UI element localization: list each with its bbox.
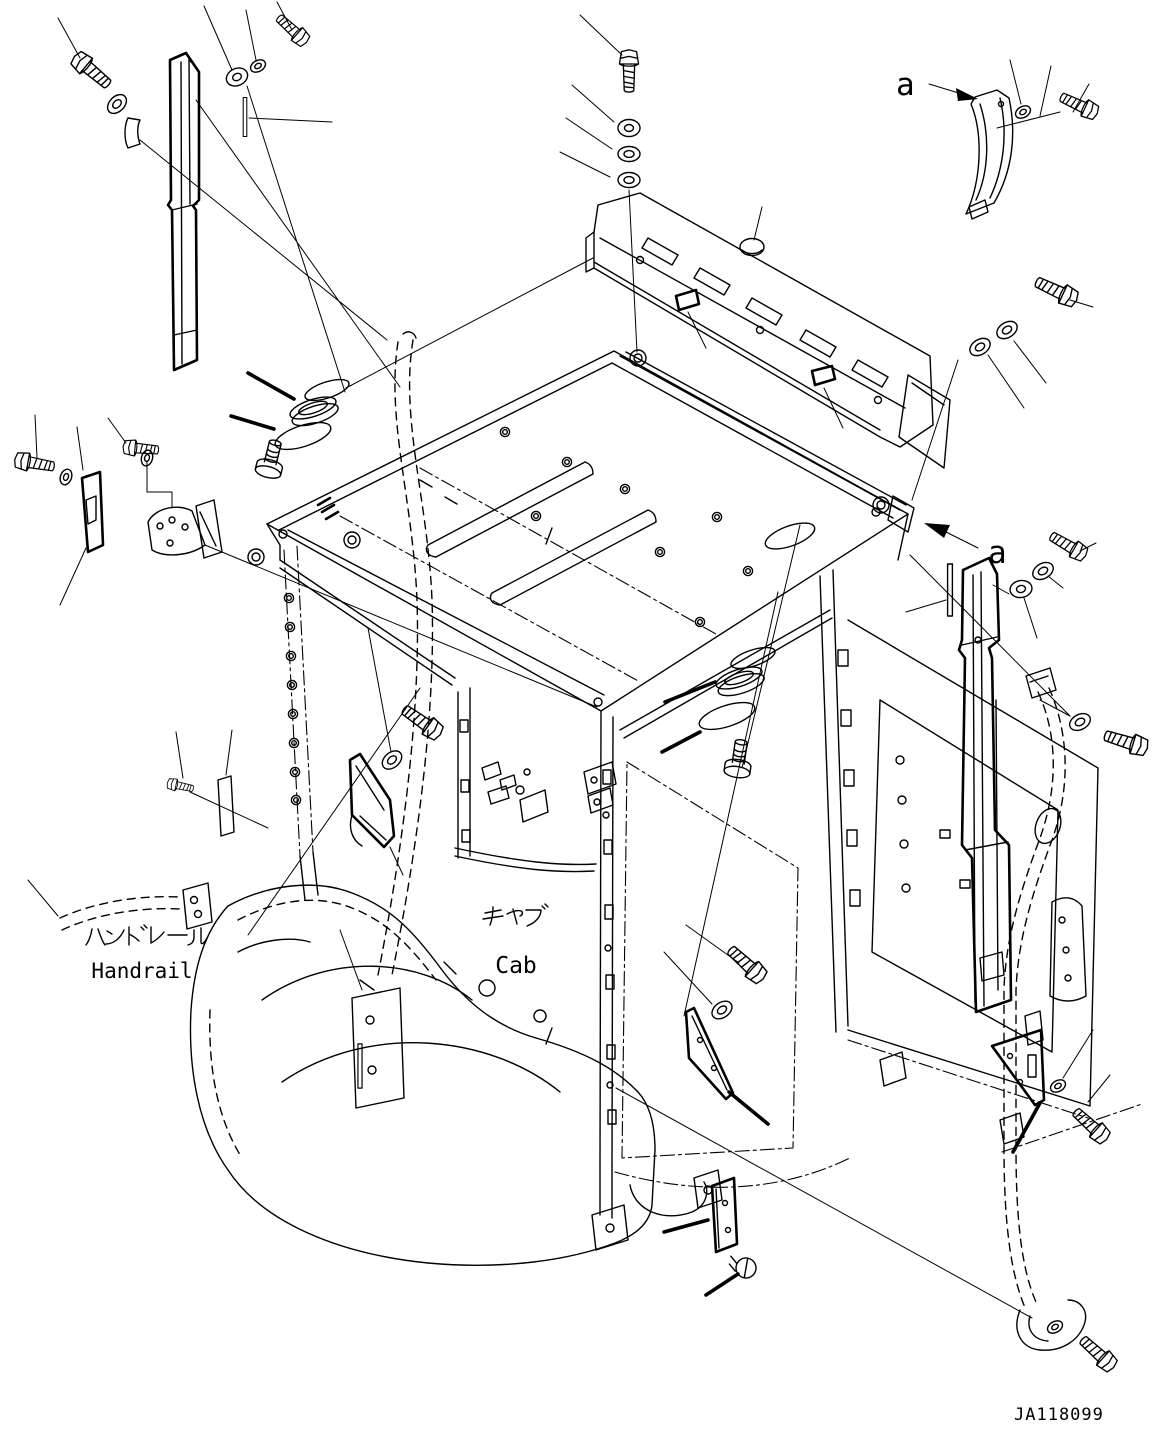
hex-bolt (1102, 726, 1150, 758)
hex-bolt (723, 942, 769, 987)
cab-body (248, 514, 1142, 1250)
flat-washer (1067, 710, 1093, 734)
roof-seal-assembly-right (662, 525, 800, 779)
small-nut (620, 484, 629, 493)
parts-diagram-page: ハンドレール キャブ (0, 0, 1157, 1453)
cab-roof (267, 350, 914, 711)
flat-washer (1048, 1077, 1067, 1095)
flat-washer (58, 468, 74, 487)
flat-washer (618, 147, 640, 162)
hex-bolt (1076, 1332, 1120, 1374)
shoulder-bolt (254, 437, 288, 480)
small-nut (655, 547, 664, 556)
left-handrail (28, 332, 432, 1108)
flat-washer (709, 998, 736, 1023)
view-label-a-side: a (988, 535, 1007, 571)
roof-right-fastener-set (912, 272, 1093, 500)
handrail-label-en: Handrail (91, 959, 192, 983)
spring-pin (243, 98, 247, 137)
hex-bolt (13, 451, 56, 476)
hex-bolt (122, 439, 159, 458)
drawing-number: JA118099 (1014, 1405, 1104, 1425)
hex-bolt (1069, 1104, 1113, 1146)
arrow-head (924, 523, 950, 538)
view-label-a-top: a (896, 67, 915, 103)
flat-washer (994, 318, 1021, 342)
cab-label-en: Cab (495, 953, 537, 979)
hex-bolt (1047, 528, 1091, 564)
flat-washer (104, 91, 130, 117)
arrow-head (956, 88, 978, 101)
window-wedge-bracket (248, 628, 446, 935)
left-trim-strip-assembly (58, 2, 400, 392)
cab-label-jp (483, 904, 548, 926)
flat-washer (967, 335, 994, 359)
flat-washer (1045, 1318, 1064, 1336)
roof-seal-assembly-left (231, 258, 593, 480)
grommet (344, 532, 360, 548)
flat-washer (1013, 103, 1032, 121)
small-nut (743, 566, 752, 575)
exploded-parts-diagram: a a (0, 0, 1157, 1453)
seal-ring (272, 417, 334, 455)
labels: Handrail Cab JA118099 (86, 904, 1104, 1425)
right-trim-strip-assembly (906, 528, 1096, 1012)
spring-pin (948, 564, 953, 616)
seal-ring (696, 697, 758, 735)
small-nut (712, 512, 721, 521)
flange-nut (618, 120, 640, 137)
hex-bolt (620, 50, 639, 92)
hex-bolt (1032, 272, 1081, 309)
flat-washer (248, 57, 267, 75)
view-arrow-side: a (924, 523, 1007, 571)
left-hinge-bracket-assembly (13, 415, 597, 707)
flat-washer (379, 747, 405, 773)
small-nut (531, 511, 540, 520)
corner-bracket-assembly-top-right: a (896, 60, 1101, 219)
small-nut (500, 427, 509, 436)
seal-ring (729, 643, 778, 672)
small-nut (562, 457, 571, 466)
grommet (248, 549, 264, 565)
flange-nut (223, 65, 250, 90)
hex-bolt (398, 701, 446, 743)
hex-bolt (68, 49, 115, 93)
front-fender (190, 885, 655, 1265)
pillar-fastener-set (166, 730, 268, 836)
roof-front-cover-assembly (560, 15, 950, 468)
flat-washer (618, 173, 640, 188)
bottom-cover-plate (616, 1088, 1032, 1318)
shoulder-bolt (723, 738, 754, 779)
spring-pin (358, 1044, 362, 1088)
flange-nut (1009, 579, 1034, 600)
hex-bolt (1057, 89, 1101, 122)
